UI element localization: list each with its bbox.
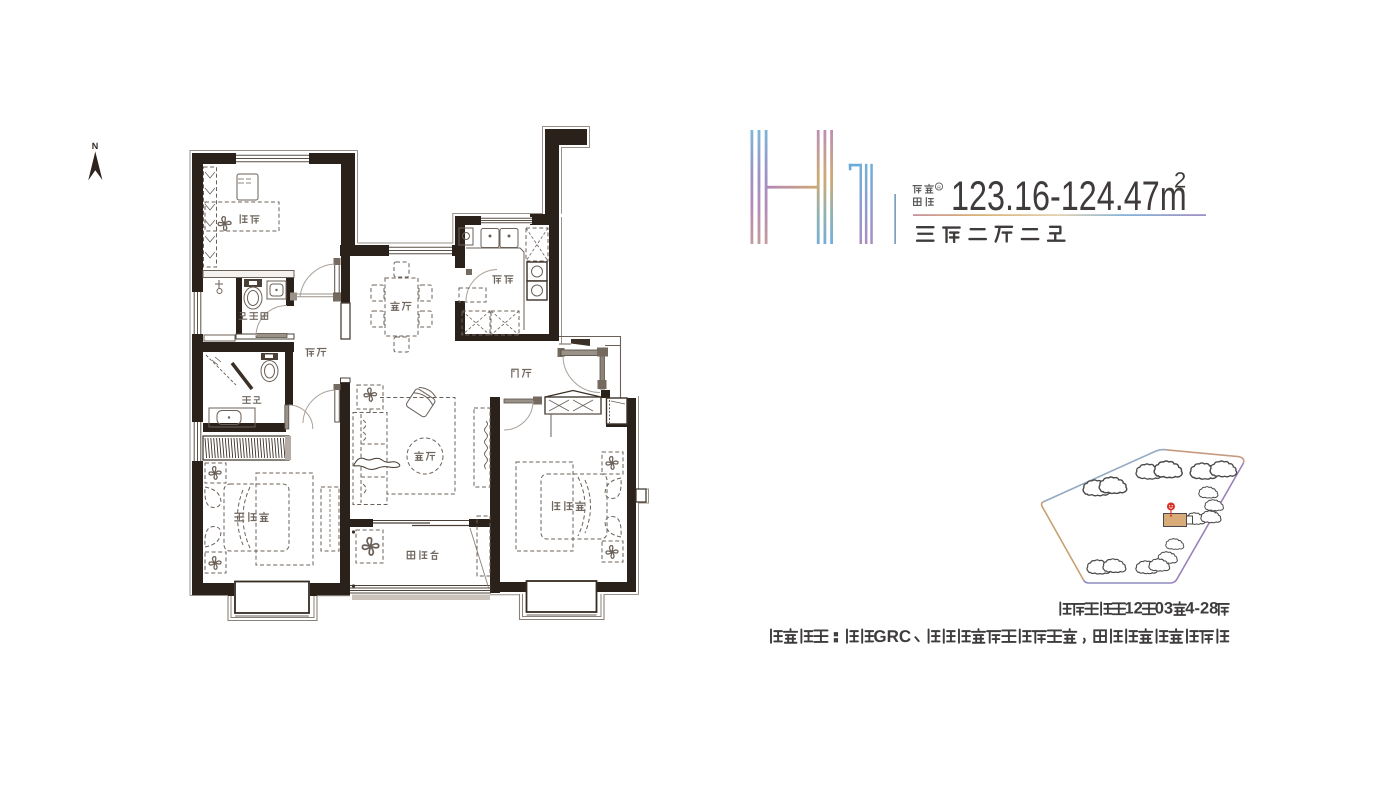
svg-text:GRC: GRC xyxy=(873,627,911,646)
svg-text:2: 2 xyxy=(1174,168,1186,193)
svg-text:R: R xyxy=(937,185,941,191)
svg-text:4-28: 4-28 xyxy=(1185,600,1218,618)
svg-text:12: 12 xyxy=(1125,600,1143,618)
svg-text:03: 03 xyxy=(1155,600,1173,618)
svg-text:123.16-124.47m: 123.16-124.47m xyxy=(951,172,1187,219)
svg-text:N: N xyxy=(92,141,99,151)
